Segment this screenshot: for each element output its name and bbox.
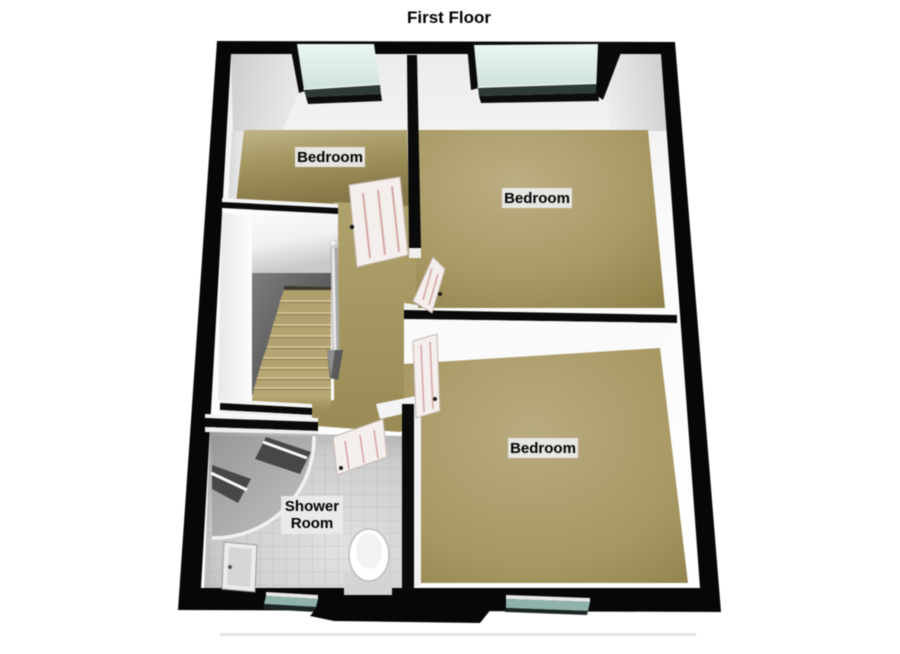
svg-text:Room: Room [291,515,334,532]
svg-text:Bedroom: Bedroom [297,149,363,166]
svg-text:First Floor: First Floor [407,8,491,27]
svg-text:Bedroom: Bedroom [510,440,576,457]
svg-text:Bedroom: Bedroom [504,190,570,207]
svg-text:Shower: Shower [285,498,339,515]
